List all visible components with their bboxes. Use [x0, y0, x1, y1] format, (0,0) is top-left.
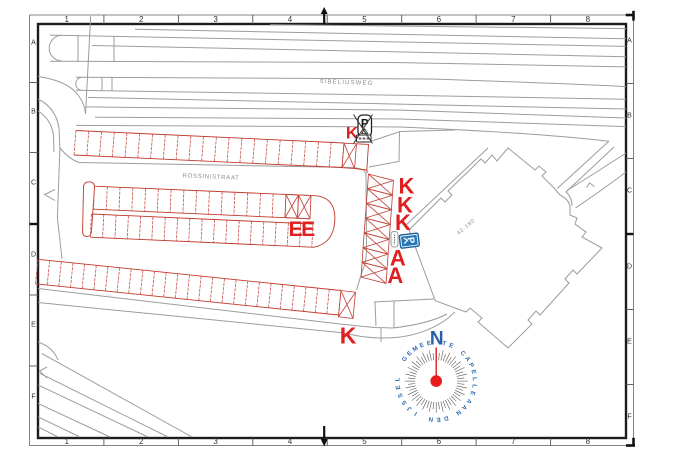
- svg-text:F: F: [31, 394, 35, 401]
- svg-text:L: L: [471, 377, 478, 381]
- svg-text:B: B: [627, 113, 632, 120]
- svg-text:C: C: [31, 180, 36, 187]
- svg-text:E: E: [436, 416, 441, 423]
- svg-text:6: 6: [437, 15, 442, 24]
- svg-text:E: E: [31, 322, 36, 329]
- svg-text:F: F: [627, 414, 631, 421]
- svg-text:B: B: [31, 109, 36, 116]
- svg-text:4: 4: [288, 437, 293, 446]
- svg-text:7: 7: [511, 437, 516, 446]
- svg-text:A: A: [627, 38, 632, 45]
- svg-text:6: 6: [437, 437, 442, 446]
- svg-text:C: C: [627, 188, 632, 195]
- svg-text:8: 8: [586, 15, 591, 24]
- svg-text:8: 8: [586, 437, 591, 446]
- svg-text:K: K: [340, 323, 357, 349]
- svg-text:A: A: [387, 263, 403, 288]
- svg-text:EE: EE: [289, 218, 316, 241]
- svg-text:1: 1: [64, 15, 69, 24]
- svg-text:D: D: [627, 264, 632, 271]
- svg-text:7: 7: [511, 15, 516, 24]
- svg-text:A: A: [31, 40, 36, 47]
- svg-text:L: L: [394, 377, 401, 381]
- svg-text:2: 2: [139, 437, 144, 446]
- svg-text:2: 2: [139, 15, 144, 24]
- svg-text:K: K: [395, 210, 411, 235]
- svg-text:3: 3: [213, 437, 218, 446]
- svg-text:D: D: [31, 252, 36, 259]
- svg-text:1: 1: [64, 437, 69, 446]
- svg-text:4: 4: [288, 15, 293, 24]
- svg-text:3: 3: [213, 15, 218, 24]
- svg-text:5: 5: [362, 437, 367, 446]
- svg-text:5: 5: [362, 15, 367, 24]
- svg-text:E: E: [627, 339, 632, 346]
